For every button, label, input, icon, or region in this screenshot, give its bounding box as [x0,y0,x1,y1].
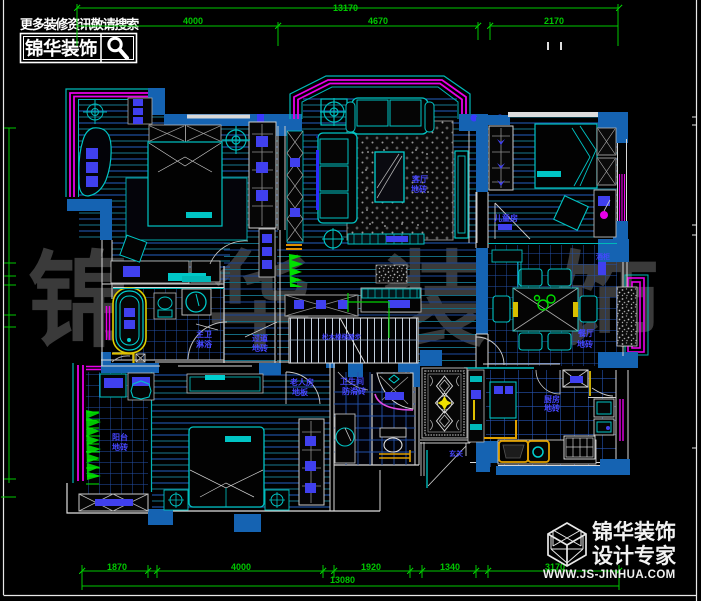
svg-text:主卫: 主卫 [196,329,212,339]
svg-text:地砖: 地砖 [112,442,128,452]
svg-text:酒柜: 酒柜 [596,252,610,261]
svg-text:WWW.JS-JINHUA.COM: WWW.JS-JINHUA.COM [543,569,676,581]
svg-text:玄关: 玄关 [449,449,463,458]
svg-text:阳台: 阳台 [112,432,128,442]
svg-text:地砖: 地砖 [544,403,560,413]
svg-text:4000: 4000 [183,16,203,26]
svg-text:设计专家: 设计专家 [592,544,677,568]
svg-text:过道: 过道 [252,333,268,343]
svg-text:老人房: 老人房 [289,377,314,387]
svg-text:1340: 1340 [440,562,460,572]
svg-text:2170: 2170 [544,16,564,26]
svg-text:厨房: 厨房 [544,394,560,404]
svg-text:餐厅: 餐厅 [577,328,594,338]
svg-text:淋浴: 淋浴 [196,339,213,349]
svg-text:地板: 地板 [292,387,309,397]
svg-text:4670: 4670 [368,16,388,26]
svg-text:松木楼梯踏步: 松木楼梯踏步 [322,332,362,341]
svg-text:13080: 13080 [330,575,355,585]
svg-text:客厅: 客厅 [411,174,428,184]
svg-text:地砖: 地砖 [577,339,593,349]
svg-text:防滑砖: 防滑砖 [342,386,366,396]
svg-text:地砖: 地砖 [252,343,268,353]
svg-text:锦华装饰: 锦华装饰 [25,38,97,59]
svg-text:儿童房: 儿童房 [493,213,518,223]
svg-text:1920: 1920 [361,562,381,572]
svg-text:地砖: 地砖 [411,184,427,194]
svg-text:4000: 4000 [231,562,251,572]
svg-text:卫生间: 卫生间 [340,376,364,386]
svg-text:锦华装饰: 锦华装饰 [592,520,676,544]
svg-text:1870: 1870 [107,562,127,572]
svg-text:13170: 13170 [333,3,358,13]
svg-text:更多装修资讯敬请搜索: 更多装修资讯敬请搜索 [20,17,139,32]
